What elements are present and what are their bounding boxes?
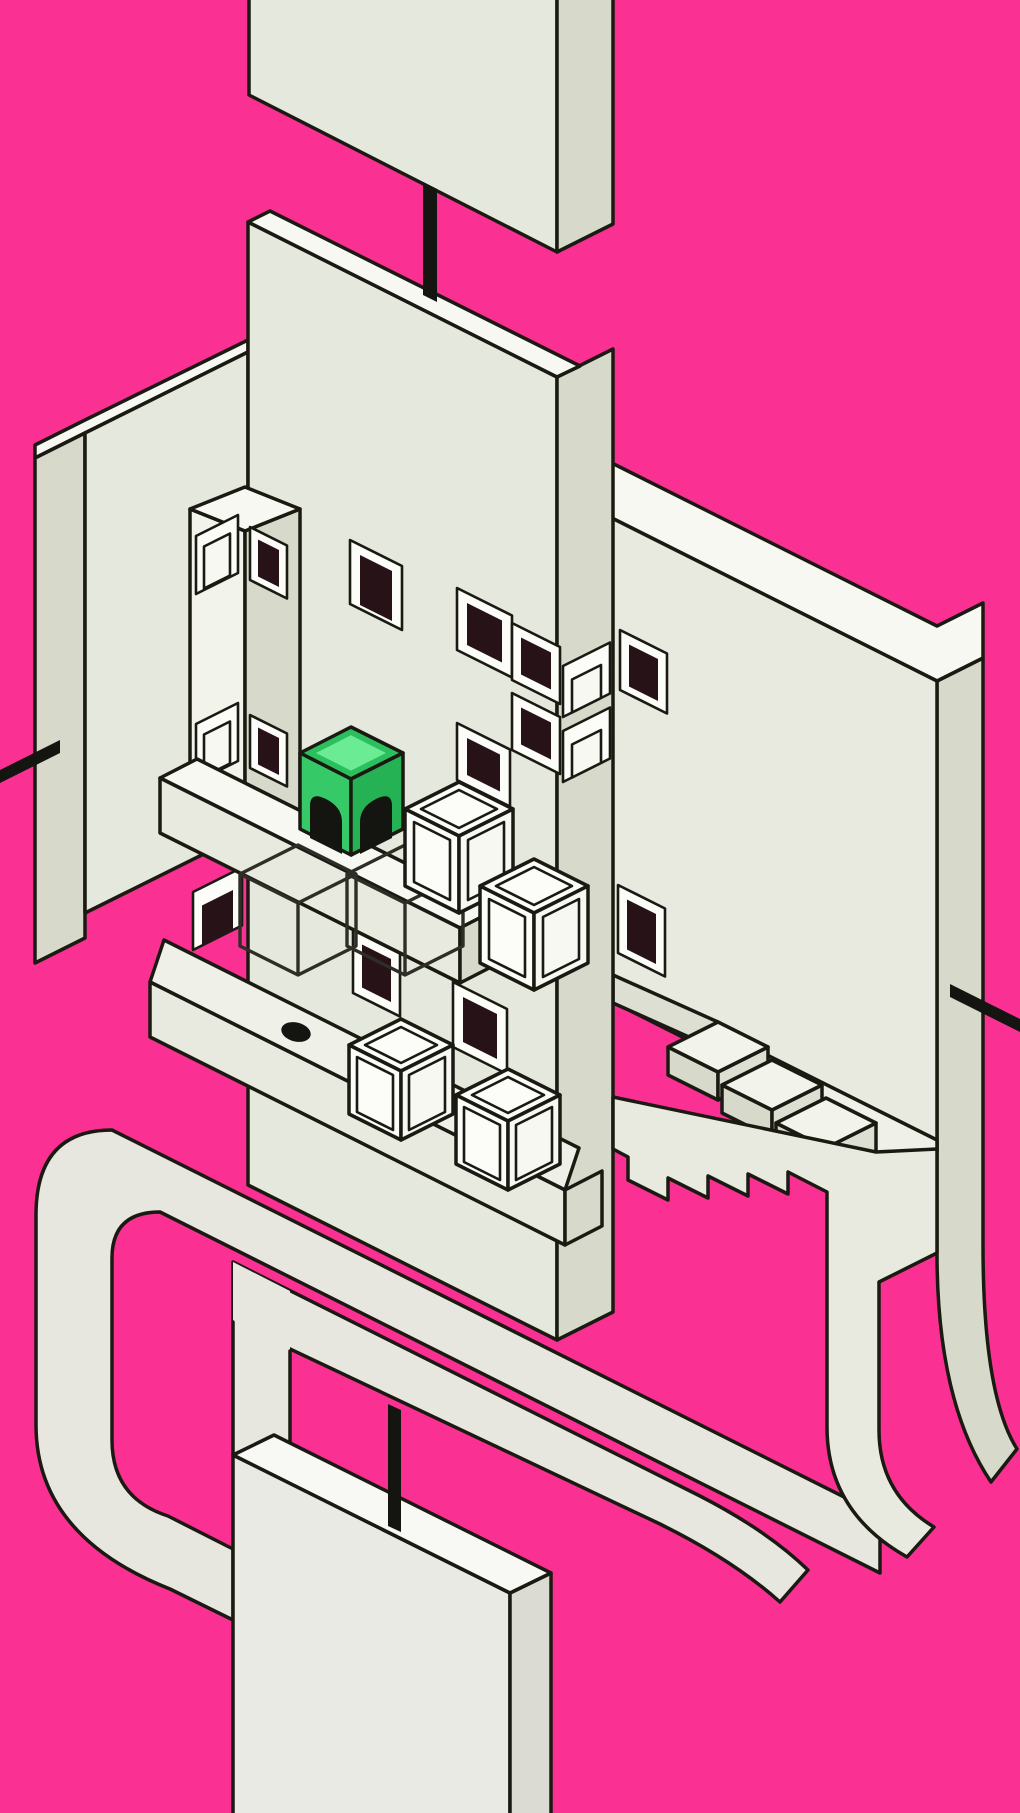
bottom-slab-side-face xyxy=(510,1573,551,1813)
white-cube-3[interactable] xyxy=(349,1019,453,1140)
green-character-cube[interactable] xyxy=(300,727,403,855)
top-connector-peg xyxy=(423,182,437,302)
left-wall-side-strip xyxy=(35,433,85,963)
level-scene xyxy=(0,0,1020,1813)
white-cube-4[interactable] xyxy=(456,1069,560,1190)
bottom-connector-peg xyxy=(388,1404,401,1532)
game-viewport xyxy=(0,0,1020,1813)
white-cube-2[interactable] xyxy=(480,859,588,990)
top-slab-side-face xyxy=(557,0,613,252)
